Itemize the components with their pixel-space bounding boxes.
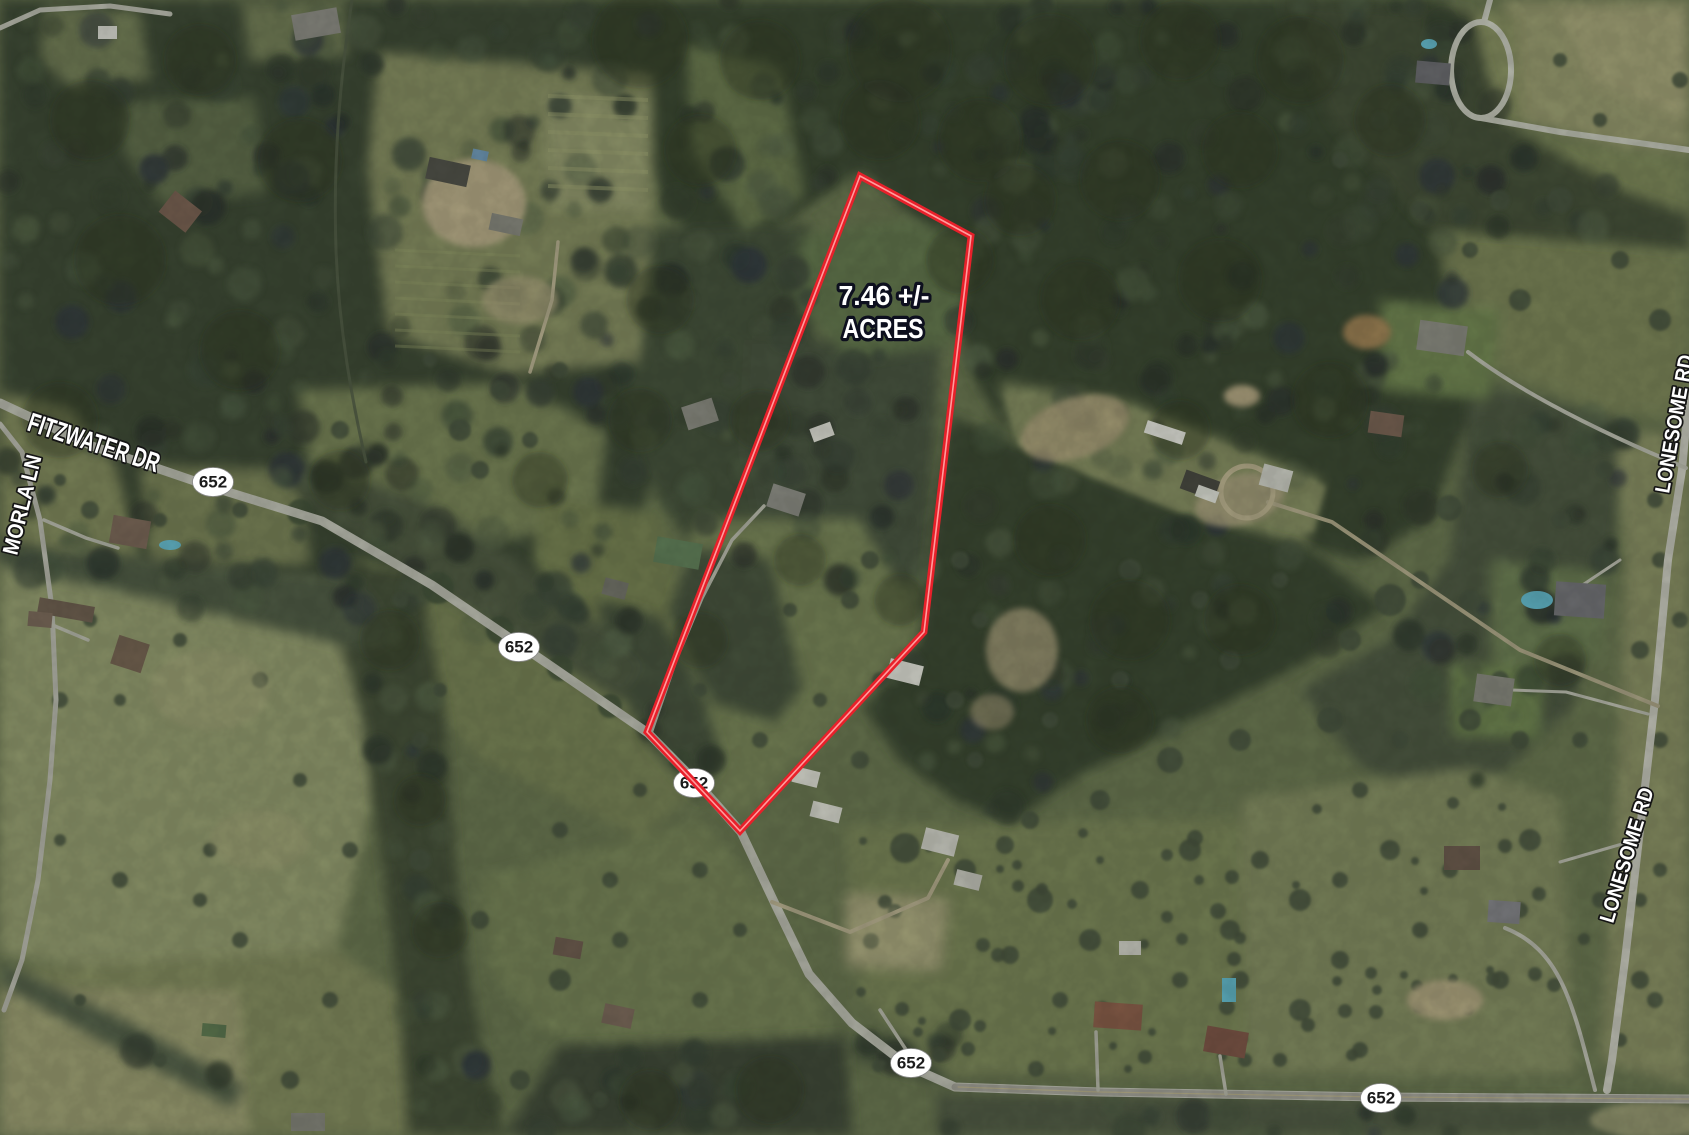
svg-text:652: 652 [897, 1054, 925, 1073]
svg-text:652: 652 [199, 473, 227, 492]
svg-text:652: 652 [505, 638, 533, 657]
svg-text:7.46 +/-: 7.46 +/- [839, 280, 930, 311]
svg-text:ACRES: ACRES [843, 313, 924, 344]
svg-text:652: 652 [1367, 1089, 1395, 1108]
